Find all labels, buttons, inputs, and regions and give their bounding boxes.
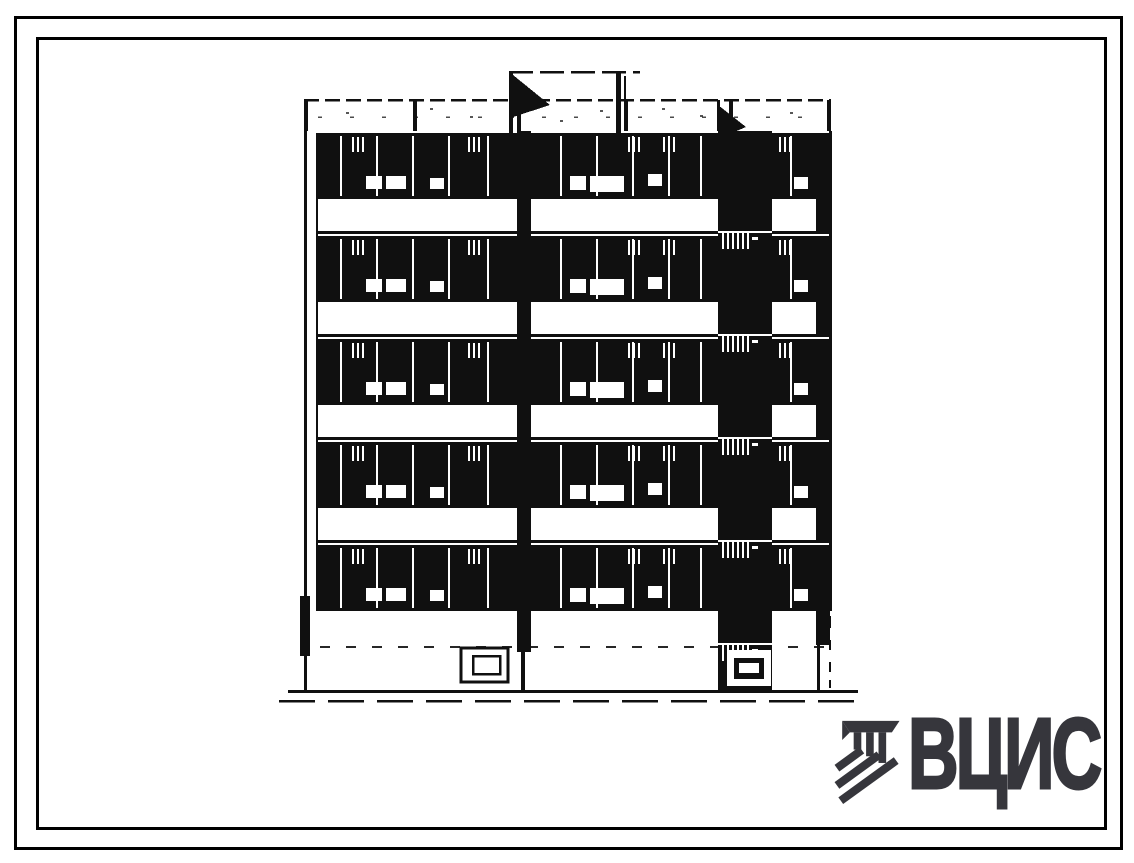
vcis-logo-icon	[832, 719, 904, 805]
entrance-left	[461, 648, 508, 682]
ground-line	[288, 690, 858, 693]
roof-penthouse	[509, 72, 513, 133]
entrance-stairwell	[727, 650, 771, 686]
stairwell-strip	[718, 131, 772, 693]
logo-text: ВЦИС	[908, 704, 1099, 804]
vcis-logo: ВЦИС	[830, 714, 1100, 824]
roof-flag-left	[513, 75, 550, 117]
